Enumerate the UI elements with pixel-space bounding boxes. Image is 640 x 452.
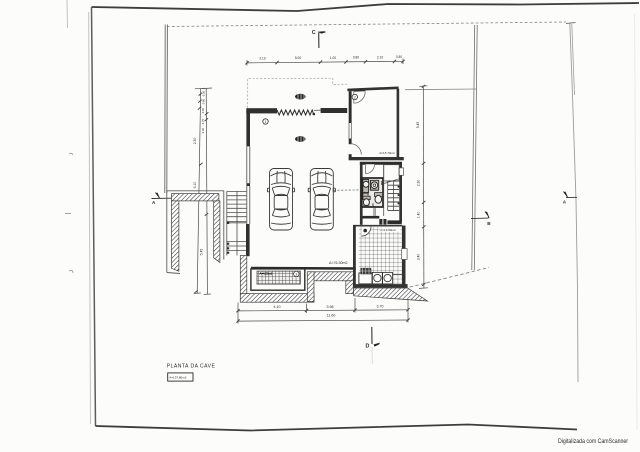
svg-text:Digitalizada com CamScanner: Digitalizada com CamScanner — [558, 439, 628, 445]
svg-text:0.60: 0.60 — [201, 98, 205, 104]
svg-text:A=76.30m2: A=76.30m2 — [329, 261, 347, 265]
svg-text:2.10: 2.10 — [377, 55, 383, 59]
svg-text:3: 3 — [295, 273, 297, 277]
svg-text:3.70: 3.70 — [377, 305, 384, 309]
svg-text:A=4.50m2: A=4.50m2 — [260, 271, 273, 275]
svg-text:0.80: 0.80 — [353, 56, 359, 60]
svg-text:0.50: 0.50 — [396, 55, 402, 59]
svg-text:5.00: 5.00 — [295, 56, 301, 60]
svg-text:11.60: 11.60 — [327, 314, 336, 318]
svg-text:5.45: 5.45 — [200, 249, 204, 256]
svg-text:2.10: 2.10 — [259, 57, 265, 61]
svg-text:3.10: 3.10 — [193, 182, 197, 189]
svg-text:A=137.80m2: A=137.80m2 — [169, 376, 186, 380]
svg-text:0.75: 0.75 — [201, 118, 205, 124]
svg-text:2.30: 2.30 — [416, 180, 420, 187]
svg-text:1.00: 1.00 — [330, 56, 336, 60]
svg-text:3.98: 3.98 — [327, 305, 334, 309]
svg-text:0.45: 0.45 — [201, 107, 205, 113]
svg-text:0.30: 0.30 — [201, 127, 205, 133]
svg-text:1.40: 1.40 — [417, 212, 421, 219]
svg-text:C: C — [312, 30, 316, 36]
svg-text:2.30: 2.30 — [193, 138, 197, 145]
svg-text:4.10: 4.10 — [274, 305, 281, 309]
svg-text:3.40: 3.40 — [417, 254, 421, 261]
svg-text:PLANTA DA CAVE: PLANTA DA CAVE — [167, 364, 216, 370]
svg-text:0.30: 0.30 — [202, 90, 206, 96]
svg-text:5.45: 5.45 — [416, 122, 420, 129]
svg-text:1: 1 — [265, 120, 267, 124]
svg-text:2: 2 — [354, 96, 356, 100]
svg-text:A=15.70m2: A=15.70m2 — [379, 151, 395, 155]
svg-text:A=13.90m2: A=13.90m2 — [380, 228, 396, 232]
svg-text:D: D — [366, 344, 370, 350]
